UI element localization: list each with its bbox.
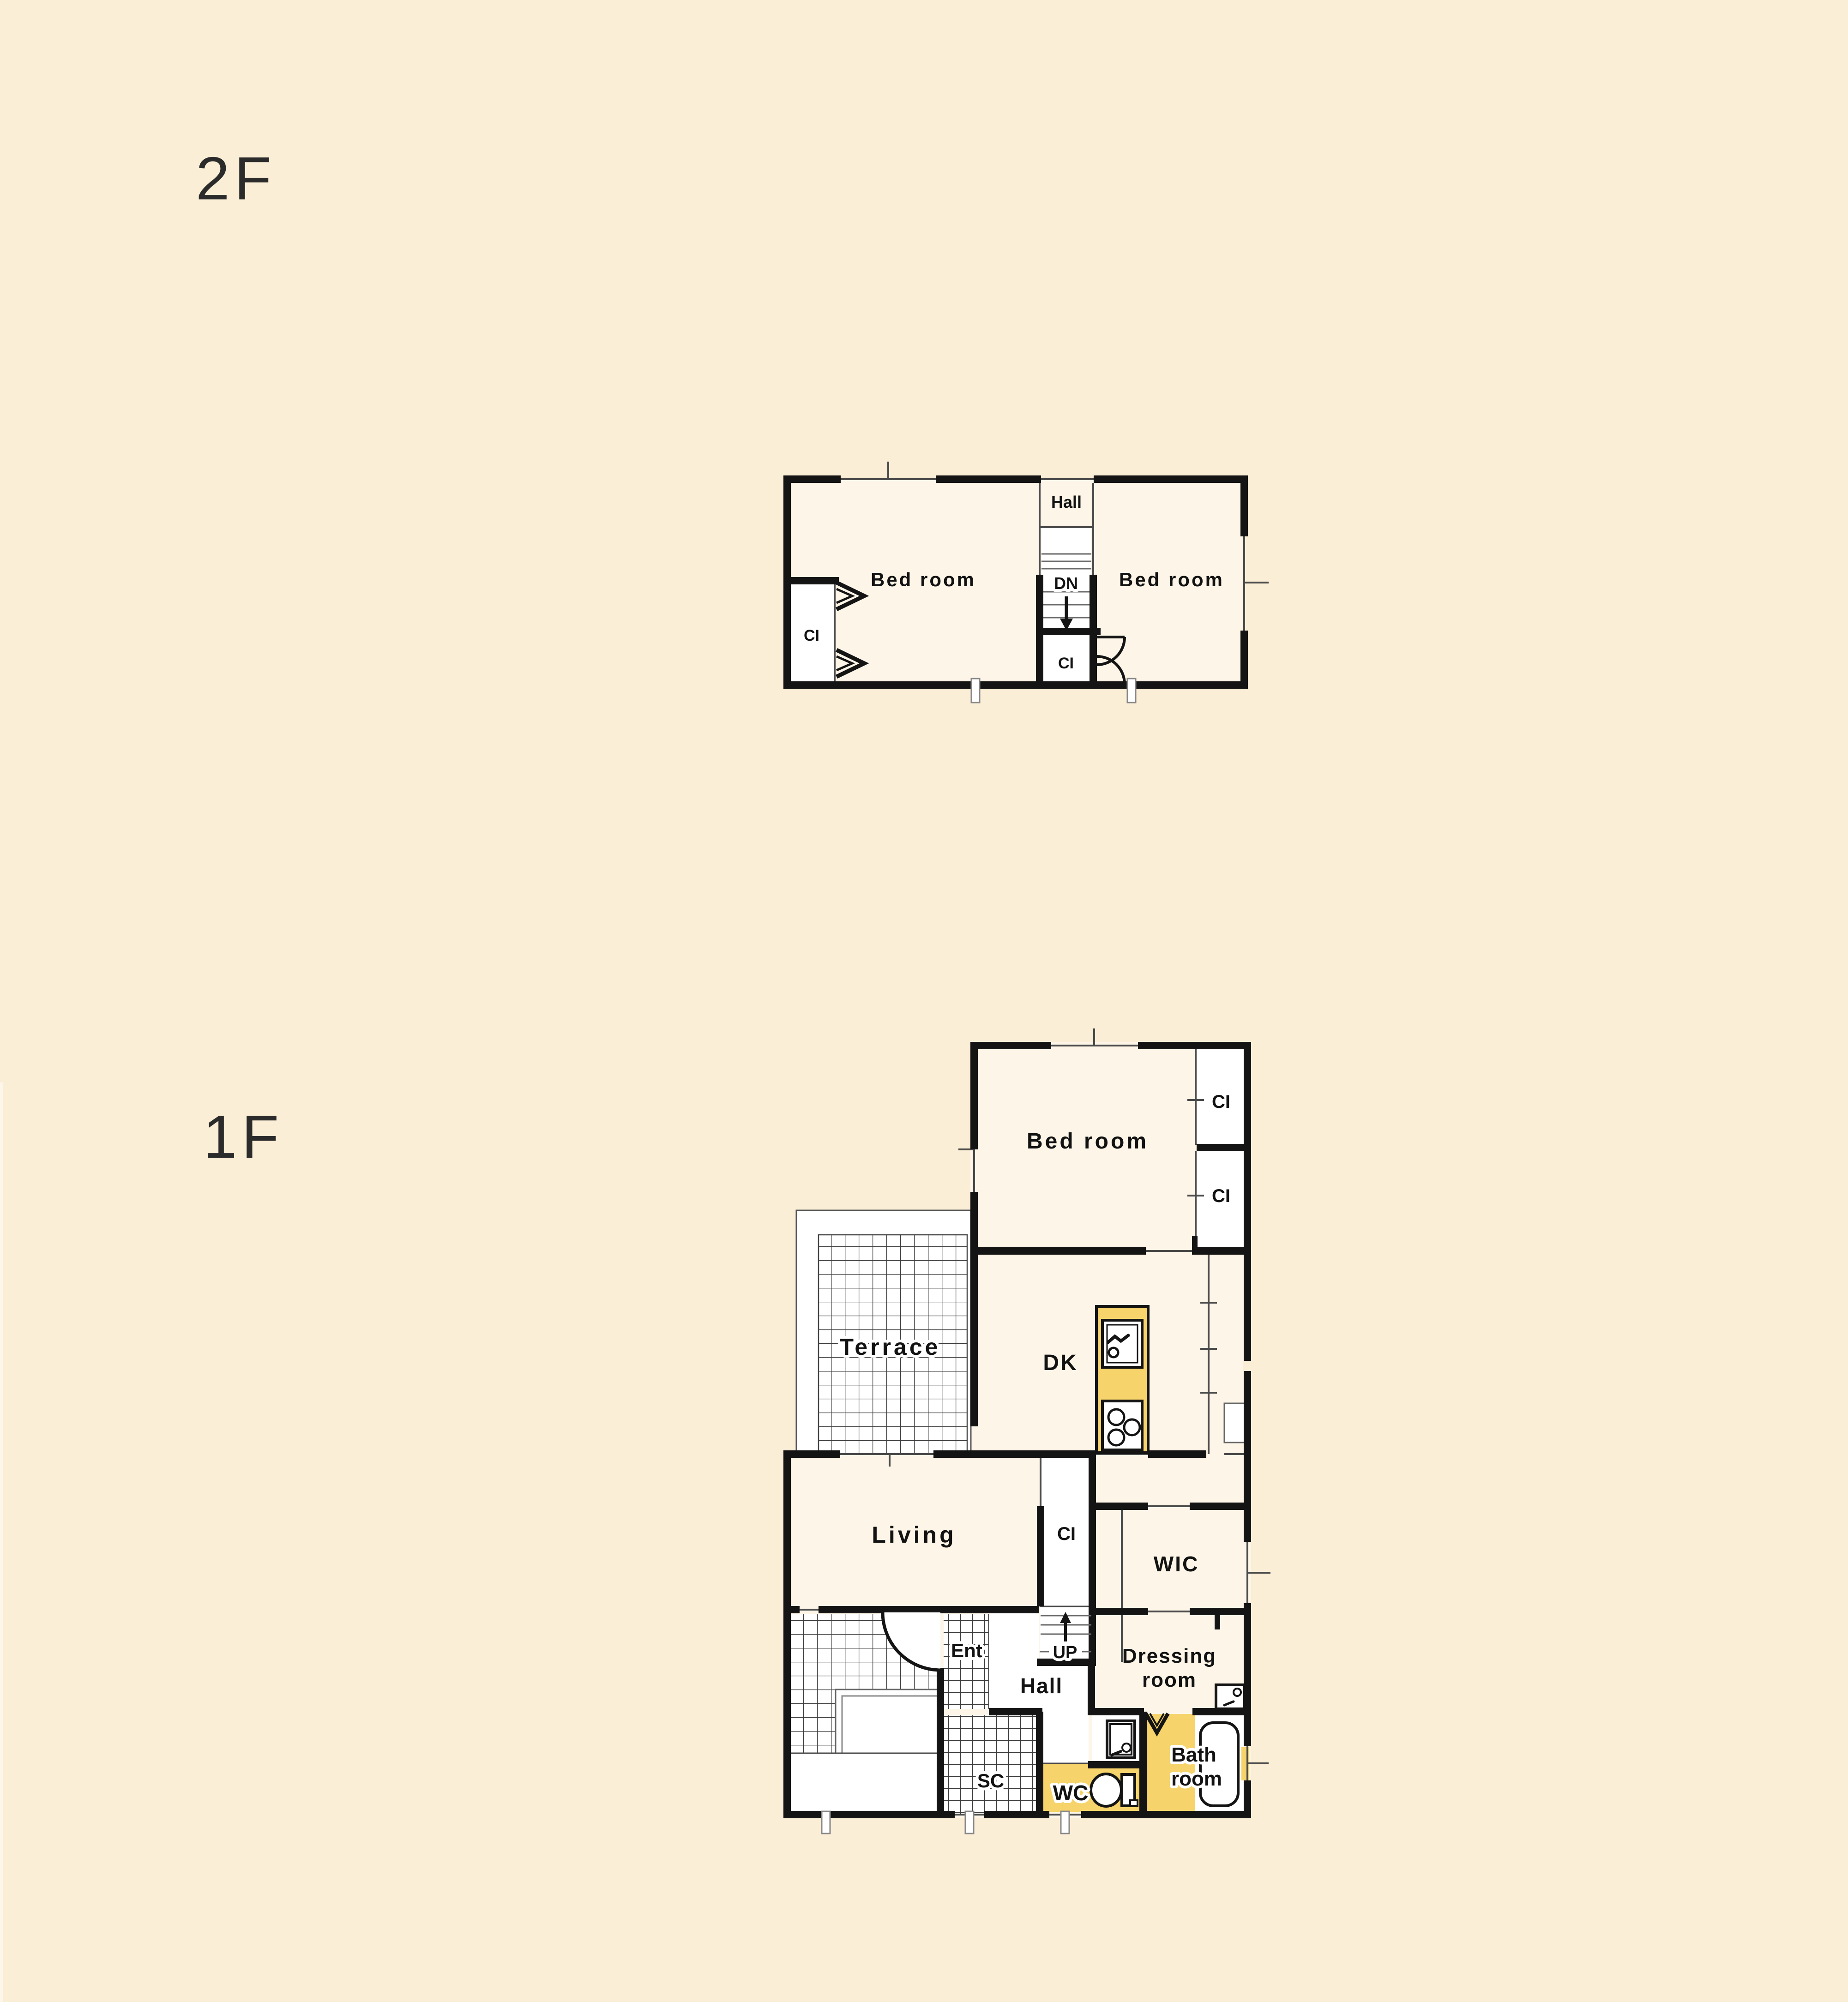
corridor-fixture [1224,1403,1246,1443]
kitchen-sink-icon [1102,1320,1142,1367]
room-label-bath-line2: room [1171,1768,1222,1790]
washbasin-icon [1107,1721,1135,1758]
label-stairs-up: UP [1053,1643,1077,1662]
room-label-closet-stair-2f: CI [1058,655,1074,672]
window-tab-icon [822,1811,830,1834]
window-tab-icon [965,1811,974,1834]
stove-icon [1102,1401,1142,1450]
room-label-shoe-closet: SC [977,1770,1004,1792]
room-label-terrace: Terrace [840,1334,941,1360]
washbasin-icon [1216,1685,1245,1709]
label-stairs-down: DN [1054,574,1078,593]
room-label-living: Living [872,1522,956,1548]
room-label-dressing-line1: Dressing [1122,1645,1216,1667]
kitchen-counter [1096,1306,1148,1453]
room-label-bath-line1: Bath [1171,1743,1216,1766]
shoe-closet-tiles [944,1715,1036,1815]
window-tab-icon [1061,1811,1069,1834]
room-label-bedroom-1f: Bed room [1027,1129,1149,1154]
room-label-closet-b: CI [1212,1186,1230,1206]
left-edge-artifact [0,1082,3,2002]
toilet-icon [1091,1774,1138,1806]
room-label-closet-a: CI [1212,1092,1230,1112]
room-label-dressing-line2: room [1142,1669,1197,1691]
window-tab-icon [1127,679,1136,703]
window-tab-icon [971,679,980,703]
room-label-dk: DK [1043,1351,1077,1375]
room-label-wic: WIC [1154,1552,1199,1576]
room-label-bedroom-left-2f: Bed room [871,569,976,590]
room-label-closet-hall: CI [1057,1524,1076,1544]
room-label-hall-2f: Hall [1051,493,1082,511]
wall-gap [1243,1361,1252,1371]
room-label-closet-left-2f: CI [804,627,819,644]
room-label-hall-1f: Hall [1020,1674,1063,1698]
room-label-entrance: Ent [951,1640,982,1661]
floorplan-page: 2F 1F [0,0,1848,2002]
entrance-tiles [944,1614,989,1709]
room-label-wc: WC [1053,1781,1089,1805]
floorplan-canvas: 2F 1F [0,0,1848,2002]
second-floor-plan: Hall Bed room Bed room DN CI CI [783,462,1269,703]
floor-label-2f: 2F [196,144,276,212]
floor-label-1f: 1F [203,1103,283,1171]
room-label-bedroom-right-2f: Bed room [1119,569,1224,590]
